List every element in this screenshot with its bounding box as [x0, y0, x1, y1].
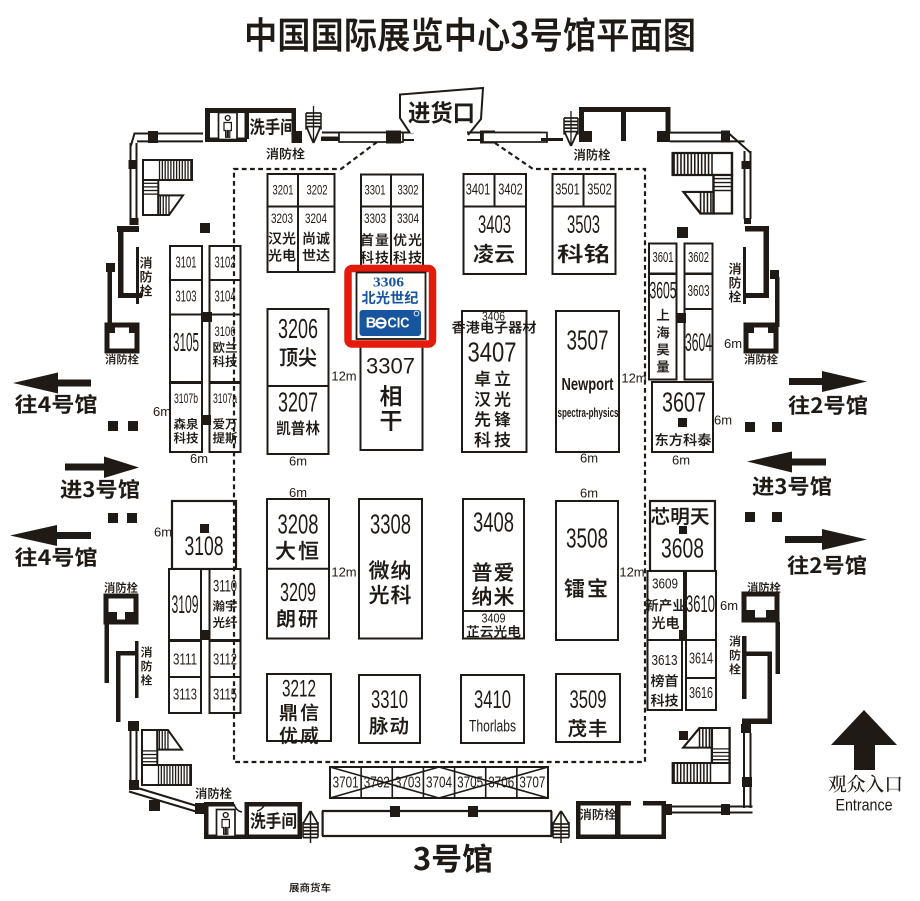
svg-text:香港电子器材: 香港电子器材	[452, 318, 537, 338]
svg-text:3302: 3302	[398, 183, 419, 198]
svg-text:3410: 3410	[474, 686, 511, 714]
svg-text:消防栓: 消防栓	[580, 804, 617, 823]
svg-text:3308: 3308	[370, 509, 411, 540]
svg-text:3706: 3706	[488, 775, 514, 792]
svg-text:3109: 3109	[172, 591, 199, 619]
svg-text:干: 干	[380, 402, 403, 436]
svg-text:观众入口: 观众入口	[828, 769, 903, 797]
svg-text:洗手间: 洗手间	[250, 114, 296, 140]
svg-text:3304: 3304	[397, 210, 419, 226]
svg-text:科技: 科技	[173, 428, 199, 447]
svg-text:凌云: 凌云	[473, 239, 515, 269]
svg-text:Thorlabs: Thorlabs	[469, 717, 516, 736]
svg-text:6m: 6m	[154, 525, 172, 540]
svg-text:3303: 3303	[364, 210, 386, 226]
svg-text:芷云光电: 芷云光电	[466, 621, 522, 641]
svg-text:栓: 栓	[728, 287, 741, 306]
svg-text:3102: 3102	[215, 255, 236, 272]
svg-text:Newport: Newport	[562, 374, 614, 394]
svg-text:3509: 3509	[570, 686, 607, 714]
svg-text:12m: 12m	[619, 565, 644, 580]
svg-text:3707: 3707	[519, 775, 545, 792]
svg-text:6m: 6m	[580, 451, 598, 466]
svg-text:栓: 栓	[729, 661, 741, 678]
svg-text:光电: 光电	[652, 613, 680, 633]
svg-text:洗手间: 洗手间	[250, 808, 297, 834]
svg-text:3202: 3202	[307, 183, 328, 198]
svg-text:3301: 3301	[365, 183, 386, 198]
svg-text:科技: 科技	[360, 248, 390, 268]
svg-text:Entrance: Entrance	[836, 796, 893, 815]
svg-text:3113: 3113	[173, 687, 197, 704]
svg-text:量: 量	[656, 356, 670, 376]
svg-text:北光世纪: 北光世纪	[362, 287, 419, 308]
svg-text:3105: 3105	[173, 327, 199, 357]
svg-text:3501: 3501	[555, 182, 580, 199]
svg-text:3502: 3502	[587, 182, 612, 199]
svg-text:3203: 3203	[271, 210, 293, 226]
svg-text:3108: 3108	[185, 531, 224, 561]
svg-text:12m: 12m	[331, 565, 356, 580]
svg-text:栓: 栓	[139, 281, 152, 300]
svg-text:消防栓: 消防栓	[195, 783, 232, 802]
svg-text:CIC: CIC	[388, 316, 410, 332]
svg-text:3111: 3111	[173, 652, 197, 669]
svg-text:3107b: 3107b	[174, 390, 198, 406]
svg-text:茂丰: 茂丰	[567, 713, 608, 742]
svg-text:消防栓: 消防栓	[744, 352, 778, 368]
svg-text:3701: 3701	[333, 775, 359, 792]
svg-text:3609: 3609	[652, 577, 678, 593]
svg-text:3705: 3705	[457, 775, 483, 792]
svg-text:6m: 6m	[580, 486, 598, 501]
svg-text:3号馆: 3号馆	[413, 834, 493, 879]
svg-text:消防栓: 消防栓	[574, 145, 611, 164]
svg-text:栓: 栓	[140, 672, 152, 689]
svg-text:凯普林: 凯普林	[276, 415, 320, 439]
svg-text:3401: 3401	[466, 182, 491, 199]
svg-text:大恒: 大恒	[275, 536, 321, 566]
svg-text:消防栓: 消防栓	[266, 144, 305, 163]
svg-text:3507: 3507	[567, 325, 609, 356]
svg-text:3204: 3204	[305, 210, 327, 226]
svg-text:6m: 6m	[724, 336, 742, 351]
svg-text:3607: 3607	[662, 387, 706, 418]
svg-text:优威: 优威	[279, 722, 321, 749]
svg-text:3605: 3605	[650, 278, 677, 305]
svg-text:6m: 6m	[714, 413, 732, 428]
svg-text:3508: 3508	[566, 523, 608, 554]
svg-text:往2号馆: 往2号馆	[787, 550, 867, 580]
svg-text:12m: 12m	[621, 371, 646, 386]
svg-text:往4号馆: 往4号馆	[15, 542, 98, 572]
svg-text:中国国际展览中心3号馆平面图: 中国国际展览中心3号馆平面图	[244, 6, 696, 60]
svg-text:展商货车: 展商货车	[289, 881, 331, 896]
svg-text:消防栓: 消防栓	[104, 579, 138, 596]
svg-text:光科: 光科	[369, 580, 413, 610]
svg-text:世达: 世达	[302, 246, 330, 266]
svg-text:3602: 3602	[688, 250, 709, 266]
svg-text:科技: 科技	[393, 248, 423, 268]
svg-text:榜首: 榜首	[651, 671, 679, 691]
svg-text:3608: 3608	[661, 533, 704, 564]
svg-text:3603: 3603	[688, 283, 710, 300]
svg-text:3616: 3616	[689, 685, 713, 702]
svg-text:3104: 3104	[215, 289, 236, 306]
svg-text:3207: 3207	[278, 387, 318, 418]
svg-text:3614: 3614	[689, 651, 713, 668]
svg-text:6m: 6m	[153, 404, 171, 419]
svg-text:科技: 科技	[651, 691, 679, 711]
svg-text:6m: 6m	[289, 454, 307, 469]
svg-text:12m: 12m	[331, 369, 356, 384]
svg-text:3601: 3601	[653, 250, 674, 266]
svg-text:进3号馆: 进3号馆	[752, 471, 832, 501]
svg-text:3101: 3101	[176, 255, 197, 272]
svg-text:往4号馆: 往4号馆	[15, 389, 98, 419]
svg-text:3403: 3403	[478, 211, 511, 239]
svg-text:消防栓: 消防栓	[105, 352, 139, 368]
svg-text:顶尖: 顶尖	[279, 342, 317, 372]
svg-text:3402: 3402	[498, 182, 523, 199]
svg-text:6m: 6m	[190, 451, 208, 466]
svg-text:spectra-physics: spectra-physics	[558, 405, 619, 420]
svg-text:3604: 3604	[685, 329, 712, 357]
svg-text:科铭: 科铭	[557, 239, 610, 269]
svg-text:科技: 科技	[474, 426, 514, 451]
svg-text:往2号馆: 往2号馆	[788, 390, 868, 420]
svg-text:3206: 3206	[278, 313, 318, 344]
svg-text:3703: 3703	[395, 775, 421, 792]
svg-text:6m: 6m	[289, 485, 307, 500]
svg-text:朗研: 朗研	[276, 603, 320, 632]
svg-text:3704: 3704	[426, 775, 452, 792]
svg-text:进3号馆: 进3号馆	[60, 474, 140, 504]
svg-text:东方科泰: 东方科泰	[655, 430, 712, 450]
svg-text:镭宝: 镭宝	[564, 573, 610, 603]
svg-text:3103: 3103	[176, 289, 197, 306]
svg-text:3613: 3613	[652, 653, 678, 669]
svg-text:3408: 3408	[473, 507, 514, 538]
svg-text:纳米: 纳米	[472, 581, 516, 611]
svg-text:3503: 3503	[567, 211, 600, 239]
svg-text:6m: 6m	[672, 453, 690, 468]
svg-text:6m: 6m	[720, 598, 738, 613]
svg-text:3201: 3201	[273, 183, 294, 198]
svg-text:脉动: 脉动	[369, 710, 410, 739]
svg-text:3610: 3610	[686, 591, 715, 618]
svg-text:3702: 3702	[364, 775, 390, 792]
svg-text:芯明天: 芯明天	[651, 501, 710, 530]
svg-text:3407: 3407	[468, 337, 517, 368]
svg-text:光电: 光电	[268, 246, 296, 266]
svg-text:进货口: 进货口	[408, 94, 475, 129]
svg-text:B: B	[366, 316, 376, 332]
svg-text:3307: 3307	[366, 354, 415, 379]
